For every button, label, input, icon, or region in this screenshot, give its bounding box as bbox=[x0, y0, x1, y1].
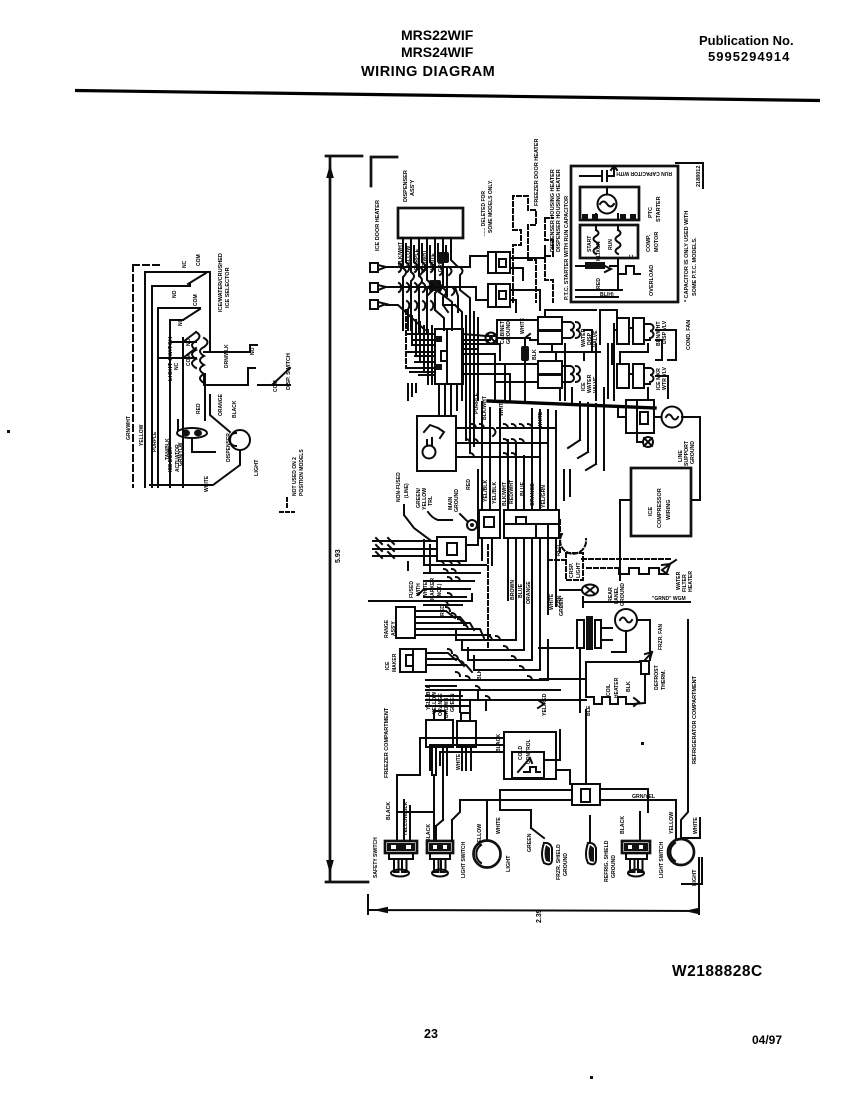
svg-text:COM: COM bbox=[196, 254, 202, 266]
svg-text:COND. FAN: COND. FAN bbox=[686, 320, 692, 350]
svg-text:RUN: RUN bbox=[608, 239, 614, 250]
svg-text:Publication No.: Publication No. bbox=[699, 33, 794, 48]
svg-text:DISPENSER: DISPENSER bbox=[226, 433, 232, 462]
svg-text:RED: RED bbox=[196, 403, 202, 414]
svg-text:MOTOR: MOTOR bbox=[654, 232, 660, 252]
svg-text:ORANGE: ORANGE bbox=[526, 581, 532, 604]
svg-text:YELLOW: YELLOW bbox=[669, 812, 675, 834]
svg-text:2.39: 2.39 bbox=[536, 909, 543, 923]
svg-text:NC: NC bbox=[178, 318, 184, 326]
svg-text:W2188828C: W2188828C bbox=[672, 963, 763, 980]
svg-text:YELLOW: YELLOW bbox=[139, 424, 145, 446]
svg-text:WIRING: WIRING bbox=[666, 500, 672, 520]
svg-text:BLK: BLK bbox=[532, 349, 538, 360]
svg-text:BLK: BLK bbox=[626, 681, 632, 692]
svg-text:TAN/BLK: TAN/BLK bbox=[165, 438, 171, 460]
svg-text:YEL/BLK: YEL/BLK bbox=[483, 480, 489, 502]
svg-text:BLK/WHT: BLK/WHT bbox=[482, 395, 488, 420]
svg-text:COIL: COIL bbox=[606, 684, 612, 696]
svg-text:ICE/WATER/CRUSHED: ICE/WATER/CRUSHED bbox=[218, 253, 224, 312]
svg-text:WHITE: WHITE bbox=[499, 399, 505, 416]
svg-text:BLACK: BLACK bbox=[620, 816, 626, 834]
svg-text:YEL/BLK: YEL/BLK bbox=[492, 482, 498, 504]
svg-text:THERM.: THERM. bbox=[661, 670, 667, 690]
svg-text:FRZR. FAN: FRZR. FAN bbox=[658, 624, 664, 650]
svg-text:GROUND: GROUND bbox=[690, 441, 696, 464]
svg-text:NO: NO bbox=[186, 338, 192, 346]
svg-text:LIGHT SWITCH: LIGHT SWITCH bbox=[168, 336, 174, 381]
svg-text:KLIXON: KLIXON bbox=[596, 241, 602, 261]
svg-text:ICE SELECTOR: ICE SELECTOR bbox=[225, 267, 231, 308]
svg-text:BLK: BLK bbox=[477, 669, 483, 680]
svg-text:FREEZER DOOR HEATER: FREEZER DOOR HEATER bbox=[534, 139, 540, 206]
svg-text:FREEZER COMPARTMENT: FREEZER COMPARTMENT bbox=[384, 707, 390, 778]
svg-text:WHITE: WHITE bbox=[693, 817, 699, 834]
svg-text:START: START bbox=[587, 236, 593, 252]
svg-text:LIGHT: LIGHT bbox=[576, 562, 582, 578]
svg-text:DRN/WLK: DRN/WLK bbox=[224, 344, 230, 368]
svg-text:GROUND: GROUND bbox=[506, 321, 512, 344]
svg-text:WHITE: WHITE bbox=[204, 475, 210, 492]
svg-text:WIRING DIAGRAM: WIRING DIAGRAM bbox=[361, 64, 495, 80]
svg-text:BLACK: BLACK bbox=[426, 824, 432, 842]
svg-text:COM: COM bbox=[273, 380, 279, 392]
svg-text:LIGHT: LIGHT bbox=[506, 855, 512, 872]
svg-text:BLACK: BLACK bbox=[496, 734, 502, 752]
svg-text:GREEN: GREEN bbox=[527, 833, 533, 852]
svg-text:RED: RED bbox=[466, 479, 472, 490]
svg-text:ASS'Y: ASS'Y bbox=[391, 621, 397, 636]
svg-text:DEFROST: DEFROST bbox=[654, 664, 660, 690]
svg-text:ICE DOOR HEATER: ICE DOOR HEATER bbox=[375, 200, 381, 251]
svg-text:GROUND: GROUND bbox=[454, 489, 460, 512]
svg-text:NC: NC bbox=[182, 260, 188, 268]
svg-text:ICE: ICE bbox=[648, 507, 654, 517]
svg-text:RUN CAPACITOR WITH: RUN CAPACITOR WITH bbox=[616, 170, 672, 176]
svg-text:WHITE: WHITE bbox=[496, 817, 502, 834]
svg-text:2188012: 2188012 bbox=[696, 166, 702, 187]
svg-text:GRN/YLW: GRN/YLW bbox=[178, 442, 184, 466]
svg-text:BLUE: BLUE bbox=[518, 583, 524, 598]
svg-text:HEATER: HEATER bbox=[688, 571, 694, 592]
svg-text:NOT USED ON 2: NOT USED ON 2 bbox=[292, 457, 298, 496]
svg-text:REFRIGERATOR COMPARTMENT: REFRIGERATOR COMPARTMENT bbox=[692, 675, 698, 764]
svg-text:BROWN: BROWN bbox=[510, 580, 516, 600]
svg-text:LIGHT SWITCH: LIGHT SWITCH bbox=[461, 842, 467, 878]
svg-text:BLE: BLE bbox=[586, 705, 592, 716]
svg-text:PURPLE: PURPLE bbox=[152, 431, 158, 452]
svg-text:PTC: PTC bbox=[648, 207, 654, 218]
svg-text:P.T.C. STARTER WITH RUN CAPACI: P.T.C. STARTER WITH RUN CAPACITOR bbox=[564, 196, 570, 300]
svg-text:COMP.: COMP. bbox=[646, 234, 652, 252]
svg-text:RED/WHT: RED/WHT bbox=[509, 479, 515, 504]
svg-text:DISP. SWITCH: DISP. SWITCH bbox=[286, 353, 292, 390]
svg-text:YEL/GRN: YEL/GRN bbox=[541, 485, 547, 508]
svg-text:ASS'Y: ASS'Y bbox=[410, 179, 416, 196]
svg-text:REFRIG. SHIELD: REFRIG. SHIELD bbox=[604, 840, 610, 882]
svg-text:MRS24WIF: MRS24WIF bbox=[401, 44, 474, 60]
svg-text:GROUND: GROUND bbox=[563, 853, 569, 876]
svg-text:NO: NO bbox=[250, 347, 256, 355]
svg-text:* CAPACITOR IS ONLY USED WITH: * CAPACITOR IS ONLY USED WITH bbox=[684, 211, 690, 302]
svg-text:04/97: 04/97 bbox=[752, 1033, 782, 1047]
svg-text:GRN/YEL: GRN/YEL bbox=[632, 794, 656, 800]
svg-text:CRSP.: CRSP. bbox=[569, 562, 575, 578]
svg-text:LIGHT SWITCH: LIGHT SWITCH bbox=[659, 842, 665, 878]
svg-text:GROUND: GROUND bbox=[611, 855, 617, 878]
svg-text:NON-FUSED: NON-FUSED bbox=[396, 472, 402, 502]
svg-text:STARTER: STARTER bbox=[656, 196, 662, 222]
svg-text:23: 23 bbox=[424, 1027, 438, 1041]
svg-text:DISPENSER HOUSING HEATER: DISPENSER HOUSING HEATER bbox=[550, 169, 556, 252]
svg-text:POSITION MODELS: POSITION MODELS bbox=[299, 449, 305, 496]
svg-text:BLACK: BLACK bbox=[386, 802, 392, 820]
svg-text:COM: COM bbox=[193, 294, 199, 306]
svg-text:(LINE): (LINE) bbox=[404, 483, 410, 498]
svg-text:5995294914: 5995294914 bbox=[708, 49, 790, 64]
svg-text:RED: RED bbox=[596, 278, 602, 289]
svg-text:5.93: 5.93 bbox=[335, 549, 342, 563]
svg-text:SOME P.T.C. MODELS.: SOME P.T.C. MODELS. bbox=[692, 237, 698, 296]
svg-text:C: C bbox=[629, 254, 635, 258]
svg-text:SOME MODELS ONLY.: SOME MODELS ONLY. bbox=[488, 179, 494, 233]
svg-text:FUSED: FUSED bbox=[409, 581, 415, 598]
svg-text:ORANGE: ORANGE bbox=[218, 393, 224, 416]
svg-text:DISPENSER: DISPENSER bbox=[403, 170, 409, 202]
svg-text:WHITE: WHITE bbox=[549, 593, 555, 610]
svg-text:FRZR. SHIELD: FRZR. SHIELD bbox=[556, 844, 562, 880]
svg-text:OVERLOAD: OVERLOAD bbox=[649, 265, 655, 296]
svg-text:GRN/WHT: GRN/WHT bbox=[126, 416, 132, 440]
svg-text:NC: NC bbox=[174, 362, 180, 370]
svg-text:YEL/RED: YEL/RED bbox=[542, 693, 548, 716]
svg-text:COM: COM bbox=[186, 354, 192, 366]
svg-text:BL(H): BL(H) bbox=[600, 292, 614, 298]
svg-text:(NCT.): (NCT.) bbox=[437, 583, 443, 598]
svg-text:MAKER: MAKER bbox=[392, 653, 398, 672]
svg-text:BLACK: BLACK bbox=[232, 400, 238, 418]
svg-text:COMPRESSOR: COMPRESSOR bbox=[657, 488, 663, 528]
svg-text:NO: NO bbox=[172, 290, 178, 298]
svg-text:SAFETY SWITCH: SAFETY SWITCH bbox=[373, 837, 379, 878]
svg-text:...... DELETED FOR: ...... DELETED FOR bbox=[481, 191, 487, 236]
svg-text:TRL: TRL bbox=[428, 495, 434, 506]
svg-text:ICE: ICE bbox=[385, 661, 391, 670]
svg-text:WHITE: WHITE bbox=[456, 753, 462, 770]
svg-text:HEATER: HEATER bbox=[614, 677, 620, 698]
svg-text:YELLOW: YELLOW bbox=[477, 824, 483, 846]
svg-text:GRN: GRN bbox=[557, 595, 563, 607]
svg-text:LIGHT: LIGHT bbox=[254, 459, 260, 476]
svg-text:WHITE: WHITE bbox=[520, 317, 526, 334]
svg-text:RANGE: RANGE bbox=[384, 619, 390, 638]
svg-text:DISPENSER HOUSING HEATER: DISPENSER HOUSING HEATER bbox=[556, 169, 562, 252]
svg-text:MRS22WIF: MRS22WIF bbox=[401, 27, 474, 43]
